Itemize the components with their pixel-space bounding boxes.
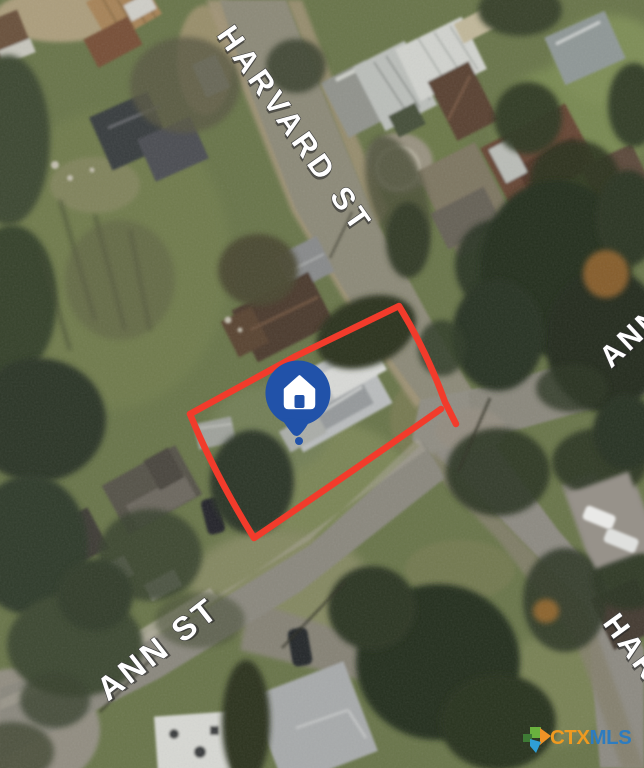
svg-text:CTXMLS: CTXMLS [550, 726, 631, 749]
